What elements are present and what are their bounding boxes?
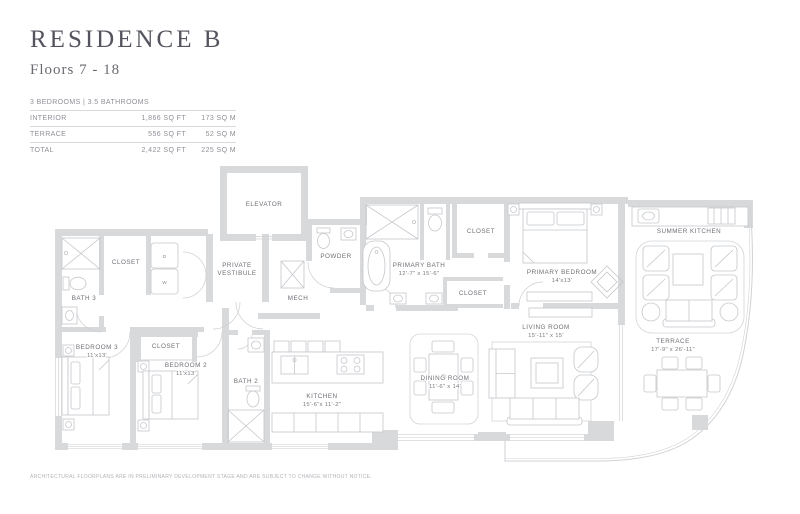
washer-label: W xyxy=(162,280,167,285)
room-label-powder: POWDER xyxy=(320,253,351,260)
room-label-closet-hall: CLOSET xyxy=(112,259,140,266)
powder-fixtures xyxy=(317,228,356,249)
room-label-primary-bath: PRIMARY BATH xyxy=(393,262,446,269)
room-dims-bedroom-2: 11'x13' xyxy=(176,371,196,377)
room-label-private-vestibule-2: VESTIBULE xyxy=(217,270,256,277)
terrace-dining-furniture xyxy=(644,357,720,430)
floorplan-page: { "page": { "title": "RESIDENCE B", "sub… xyxy=(0,0,800,514)
room-label-terrace: TERRACE xyxy=(656,338,690,345)
room-label-living-room: LIVING ROOM xyxy=(522,324,569,331)
room-label-closet-bedroom-2: CLOSET xyxy=(152,343,180,350)
floor-plan: D W xyxy=(0,0,800,514)
room-dims-living-room: 15'-11" x 15' xyxy=(528,333,564,339)
room-label-kitchen: KITCHEN xyxy=(306,393,337,400)
room-label-mech: MECH xyxy=(288,295,309,302)
kitchen-furniture xyxy=(272,341,383,432)
laundry-stack: D W xyxy=(151,243,178,294)
room-label-closet-primary-1: CLOSET xyxy=(467,228,495,235)
room-label-elevator: ELEVATOR xyxy=(246,201,283,208)
primary-bedroom-furniture xyxy=(508,203,623,301)
bath-3-fixtures xyxy=(62,238,100,324)
room-dims-primary-bath: 12'-7" x 15'-6" xyxy=(399,271,440,277)
bath-2-fixtures xyxy=(228,338,264,442)
room-label-bath-2: BATH 2 xyxy=(234,378,259,385)
room-dims-dining-room: 11'-6" x 14' xyxy=(429,384,461,390)
room-dims-bedroom-3: 11'x13' xyxy=(87,353,107,359)
mech-equipment xyxy=(281,261,304,288)
primary-bath-fixtures xyxy=(363,205,442,304)
room-label-dining-room: DINING ROOM xyxy=(421,375,470,382)
room-label-summer-kitchen: SUMMER KITCHEN xyxy=(657,228,721,235)
room-dims-primary-bedroom: 14'x13' xyxy=(552,278,572,284)
room-dims-kitchen: 15'-6"x 11'-2" xyxy=(303,402,341,408)
room-label-primary-bedroom: PRIMARY BEDROOM xyxy=(527,269,597,276)
disclaimer-text: ARCHITECTURAL FLOORPLANS ARE IN PRELIMIN… xyxy=(30,474,372,480)
room-dims-terrace: 17'-9" x 26'-11" xyxy=(651,347,695,353)
room-label-private-vestibule-1: PRIVATE xyxy=(222,262,252,269)
room-label-closet-primary-2: CLOSET xyxy=(459,290,487,297)
room-label-bath-3: BATH 3 xyxy=(72,295,97,302)
summer-kitchen-furniture xyxy=(632,207,748,333)
room-label-bedroom-3: BEDROOM 3 xyxy=(76,344,118,351)
room-label-bedroom-2: BEDROOM 2 xyxy=(165,362,207,369)
